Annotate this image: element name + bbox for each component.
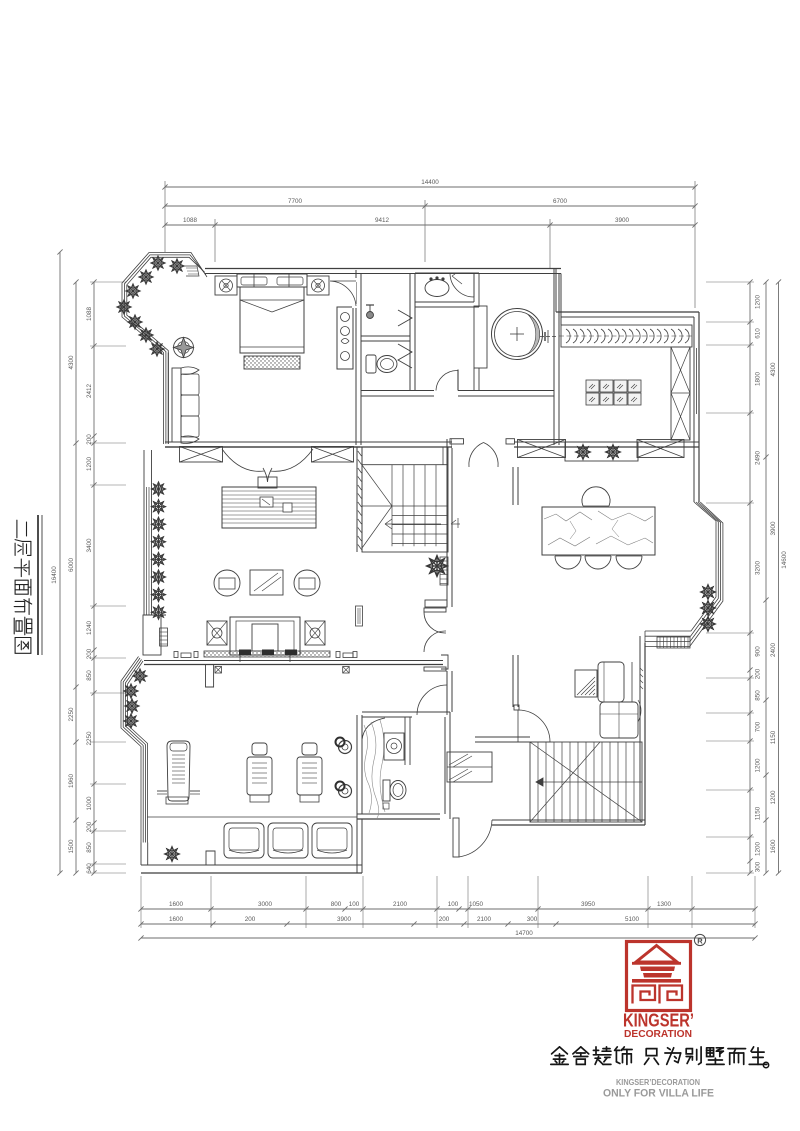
svg-text:4300: 4300 [68, 355, 75, 370]
svg-text:4300: 4300 [770, 362, 777, 377]
svg-text:200: 200 [86, 648, 93, 659]
svg-text:R: R [697, 937, 703, 946]
svg-text:2100: 2100 [477, 916, 492, 923]
svg-text:ONLY FOR VILLA LIFE: ONLY FOR VILLA LIFE [603, 1088, 714, 1100]
svg-text:1150: 1150 [755, 806, 762, 820]
svg-text:610: 610 [755, 328, 762, 339]
svg-text:2250: 2250 [68, 707, 75, 722]
svg-text:1000: 1000 [86, 796, 93, 811]
svg-text:1300: 1300 [657, 901, 672, 908]
svg-text:1800: 1800 [755, 372, 762, 387]
svg-text:6700: 6700 [553, 198, 568, 205]
svg-text:1200: 1200 [755, 842, 762, 857]
svg-text:1050: 1050 [469, 901, 484, 908]
svg-text:KINGSER’: KINGSER’ [623, 1011, 694, 1031]
svg-text:300: 300 [755, 861, 762, 872]
svg-text:1088: 1088 [86, 307, 93, 322]
svg-text:1600: 1600 [169, 916, 184, 923]
svg-text:200: 200 [86, 821, 93, 832]
svg-text:100: 100 [448, 901, 459, 908]
svg-text:1600: 1600 [169, 901, 184, 908]
svg-text:1200: 1200 [770, 790, 777, 805]
svg-text:14400: 14400 [421, 179, 439, 186]
svg-text:2250: 2250 [86, 731, 93, 746]
svg-text:1088: 1088 [183, 217, 198, 224]
svg-text:1600: 1600 [770, 839, 777, 854]
svg-text:7700: 7700 [288, 198, 303, 205]
svg-text:1960: 1960 [68, 774, 75, 789]
svg-text:700: 700 [755, 721, 762, 732]
svg-text:9412: 9412 [375, 217, 390, 224]
svg-text:2100: 2100 [393, 901, 408, 908]
svg-text:3900: 3900 [770, 521, 777, 536]
svg-text:2400: 2400 [770, 643, 777, 658]
svg-text:3000: 3000 [258, 901, 273, 908]
svg-text:6000: 6000 [68, 558, 75, 573]
svg-text:KINGSER’DECORATION: KINGSER’DECORATION [616, 1078, 700, 1087]
svg-text:3200: 3200 [755, 561, 762, 576]
svg-text:1200: 1200 [86, 457, 93, 472]
svg-text:1150: 1150 [770, 730, 777, 744]
svg-text:1240: 1240 [86, 621, 93, 636]
svg-text:14700: 14700 [515, 930, 533, 937]
svg-text:1200: 1200 [755, 758, 762, 773]
svg-text:1500: 1500 [68, 839, 75, 854]
svg-text:200: 200 [245, 916, 256, 923]
svg-text:850: 850 [86, 842, 93, 853]
svg-text:200: 200 [755, 668, 762, 679]
svg-text:3950: 3950 [581, 901, 596, 908]
svg-text:DECORATION: DECORATION [624, 1029, 692, 1040]
svg-text:640: 640 [86, 863, 93, 874]
svg-text:850: 850 [86, 670, 93, 681]
svg-text:200: 200 [439, 916, 450, 923]
svg-text:300: 300 [527, 916, 538, 923]
svg-text:100: 100 [349, 901, 360, 908]
svg-text:5100: 5100 [625, 916, 640, 923]
svg-text:3900: 3900 [337, 916, 352, 923]
svg-text:3900: 3900 [615, 217, 630, 224]
svg-text:3400: 3400 [86, 538, 93, 553]
svg-text:900: 900 [755, 646, 762, 657]
svg-text:2490: 2490 [755, 451, 762, 466]
svg-text:800: 800 [331, 901, 342, 908]
svg-text:14600: 14600 [781, 551, 788, 569]
svg-text:850: 850 [755, 690, 762, 701]
svg-text:1200: 1200 [755, 295, 762, 310]
svg-text:16400: 16400 [51, 566, 58, 584]
svg-text:2412: 2412 [86, 384, 93, 399]
